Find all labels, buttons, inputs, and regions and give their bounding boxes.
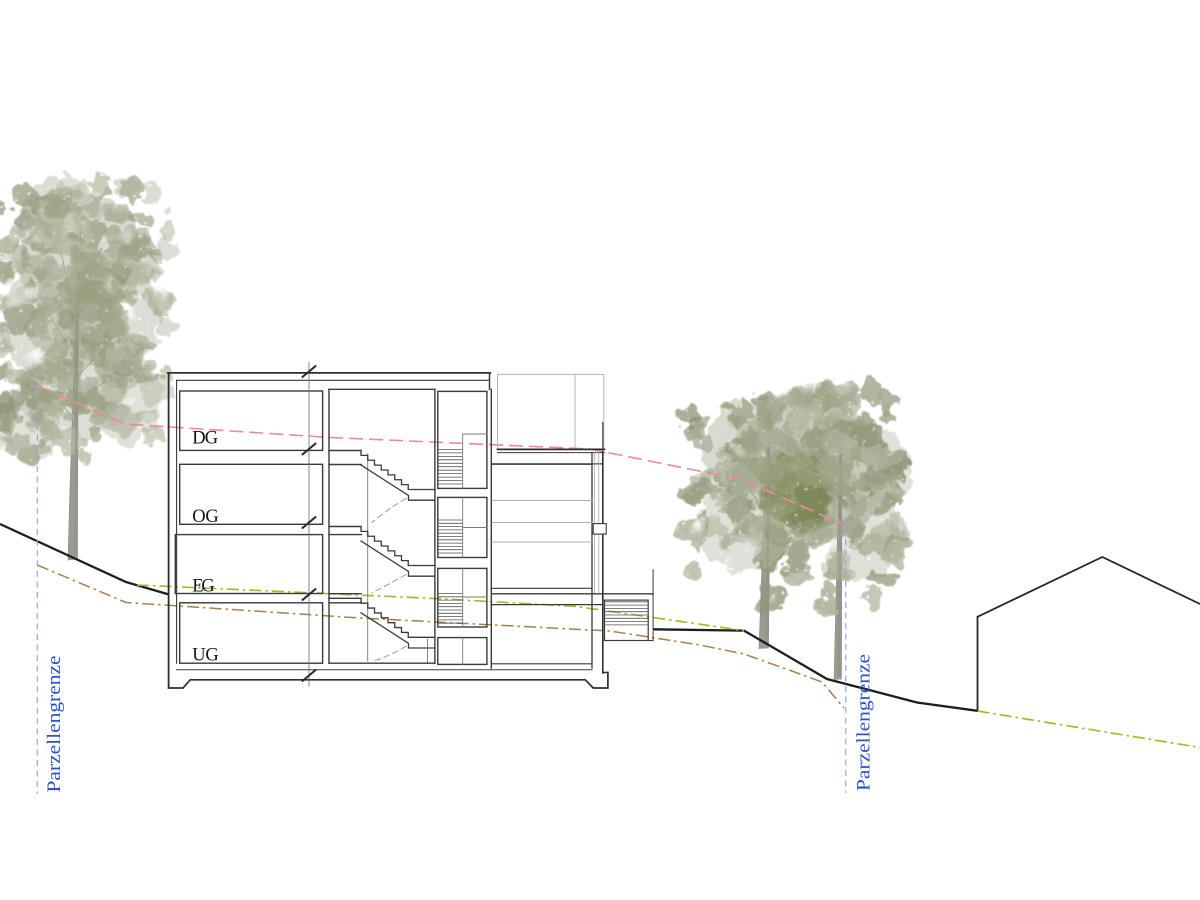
svg-text:Parzellengrenze: Parzellengrenze (854, 654, 875, 791)
svg-text:DG: DG (192, 429, 218, 449)
svg-text:UG: UG (192, 645, 219, 665)
svg-text:Parzellengrenze: Parzellengrenze (44, 656, 65, 793)
svg-text:EG: EG (192, 577, 215, 597)
svg-text:OG: OG (192, 507, 219, 527)
